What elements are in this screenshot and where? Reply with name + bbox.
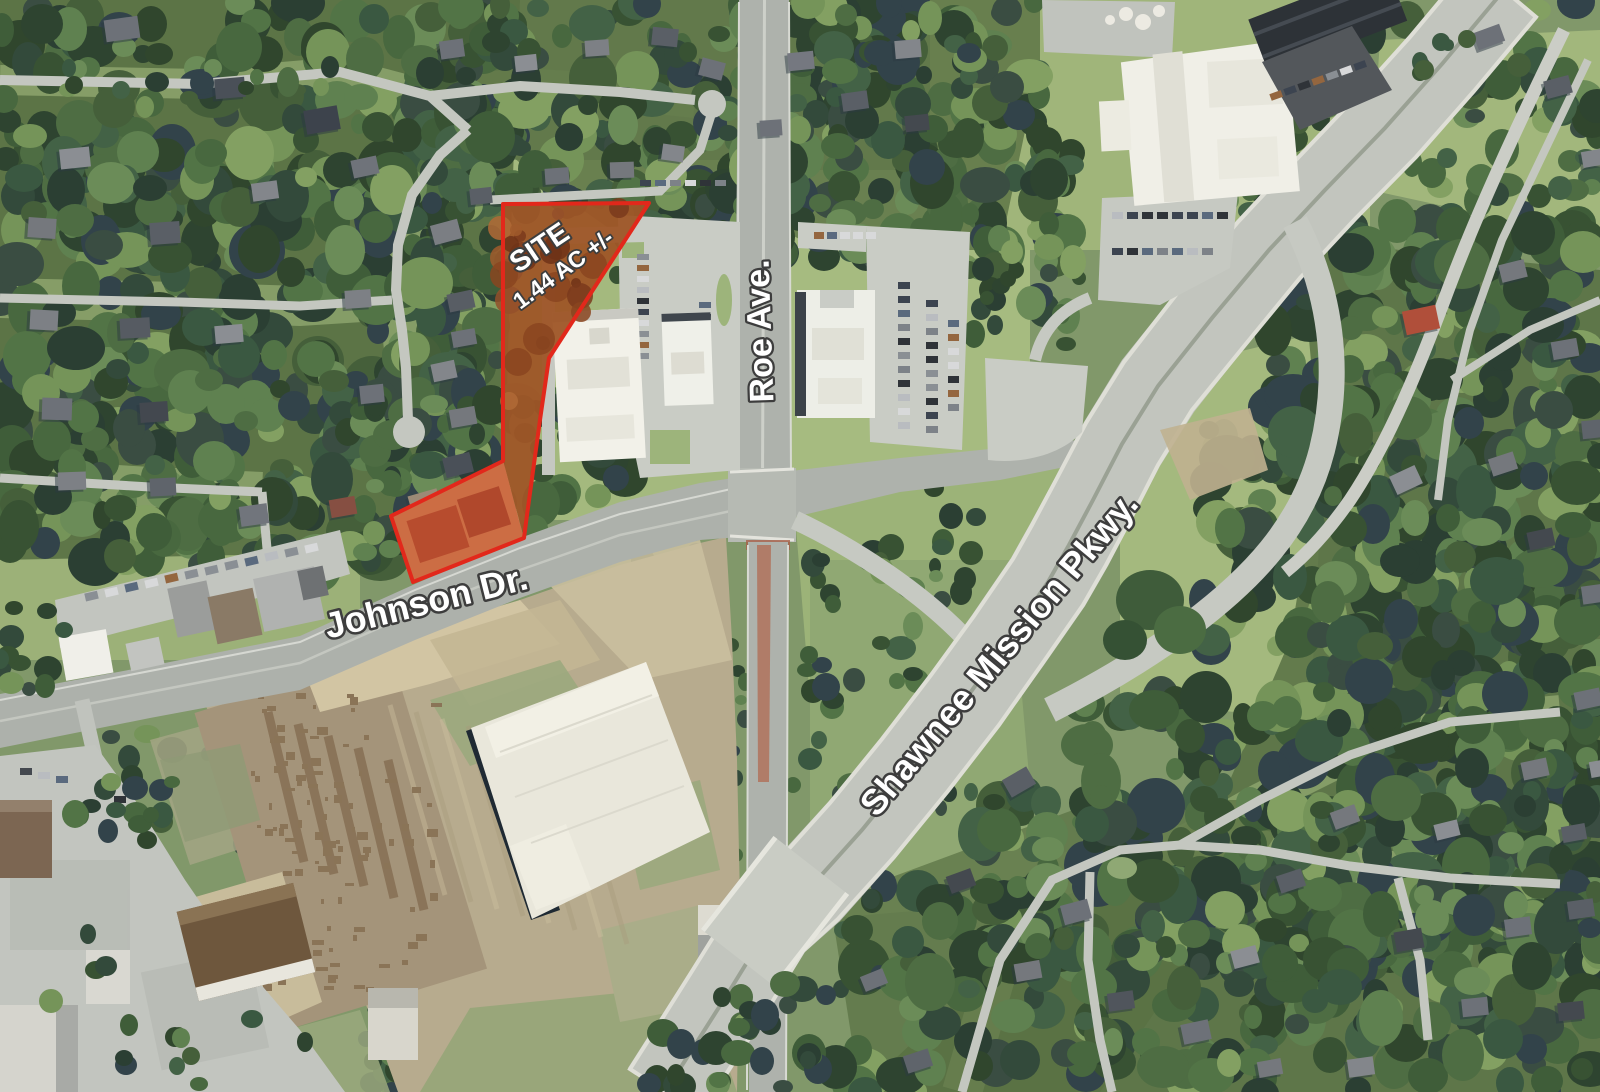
svg-text:Roe Ave.: Roe Ave. bbox=[739, 259, 782, 403]
